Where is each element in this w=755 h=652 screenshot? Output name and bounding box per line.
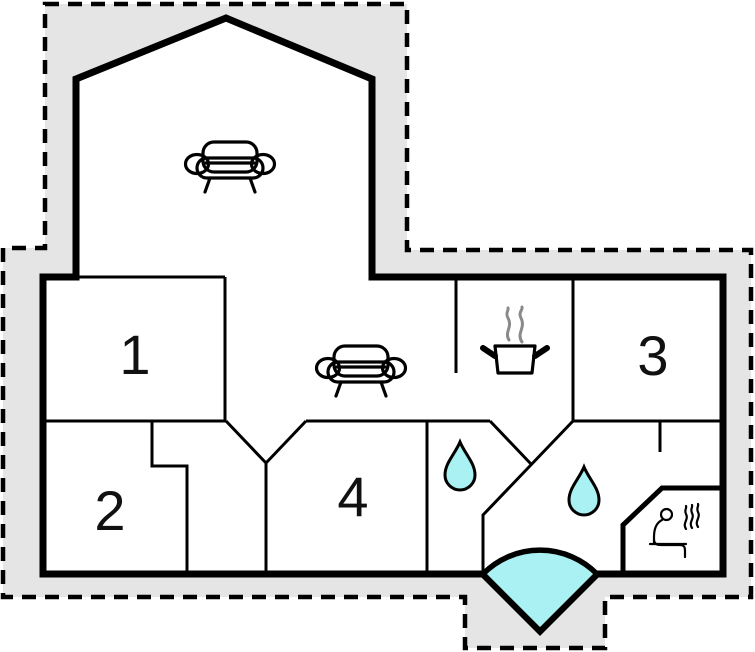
room-label-3: 3 [637,324,668,387]
room-label-2: 2 [94,479,125,542]
room-label-1: 1 [119,323,150,386]
floor-plan-canvas: 1 2 3 4 [0,0,755,652]
room-label-4: 4 [337,465,368,528]
